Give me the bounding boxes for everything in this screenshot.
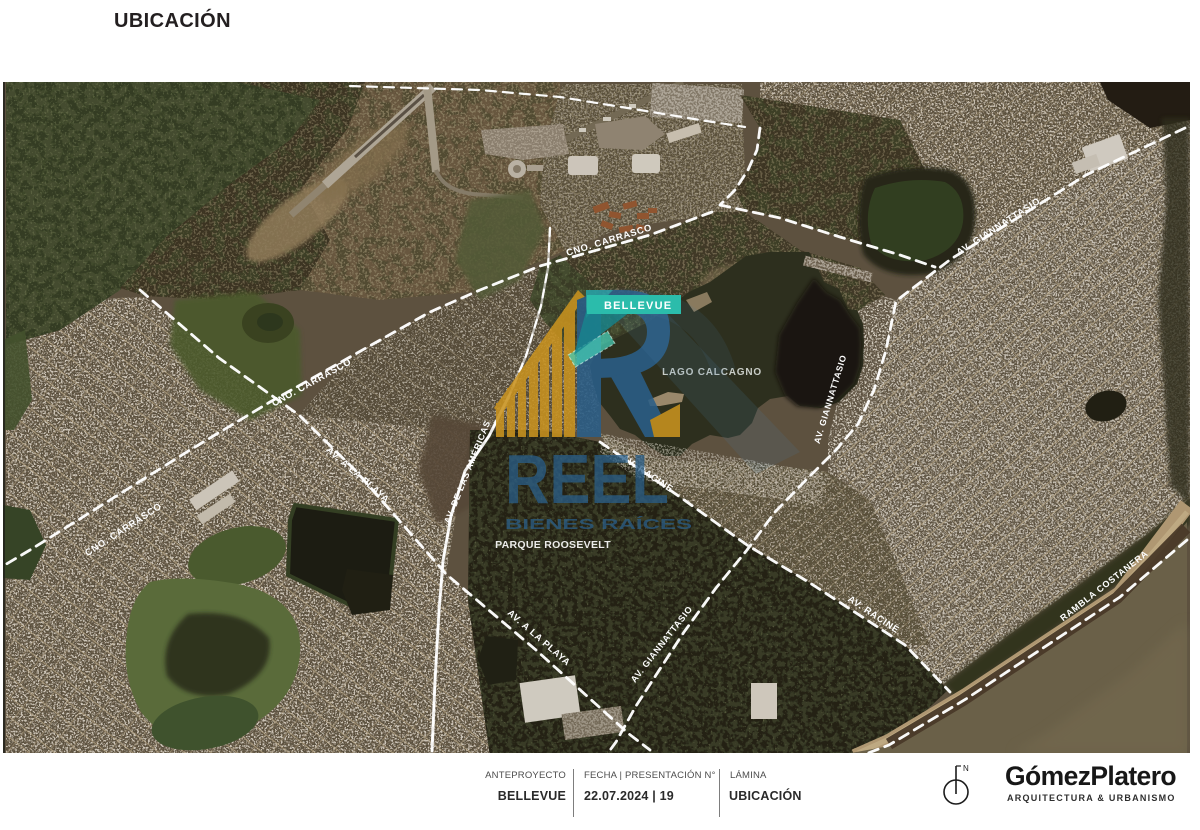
svg-text:N: N xyxy=(963,764,969,773)
svg-text:PARQUE ROOSEVELT: PARQUE ROOSEVELT xyxy=(495,539,611,551)
svg-text:REEL: REEL xyxy=(505,440,669,518)
svg-text:BELLEVUE: BELLEVUE xyxy=(604,300,672,312)
svg-text:BIENES RAÍCES: BIENES RAÍCES xyxy=(505,516,692,533)
